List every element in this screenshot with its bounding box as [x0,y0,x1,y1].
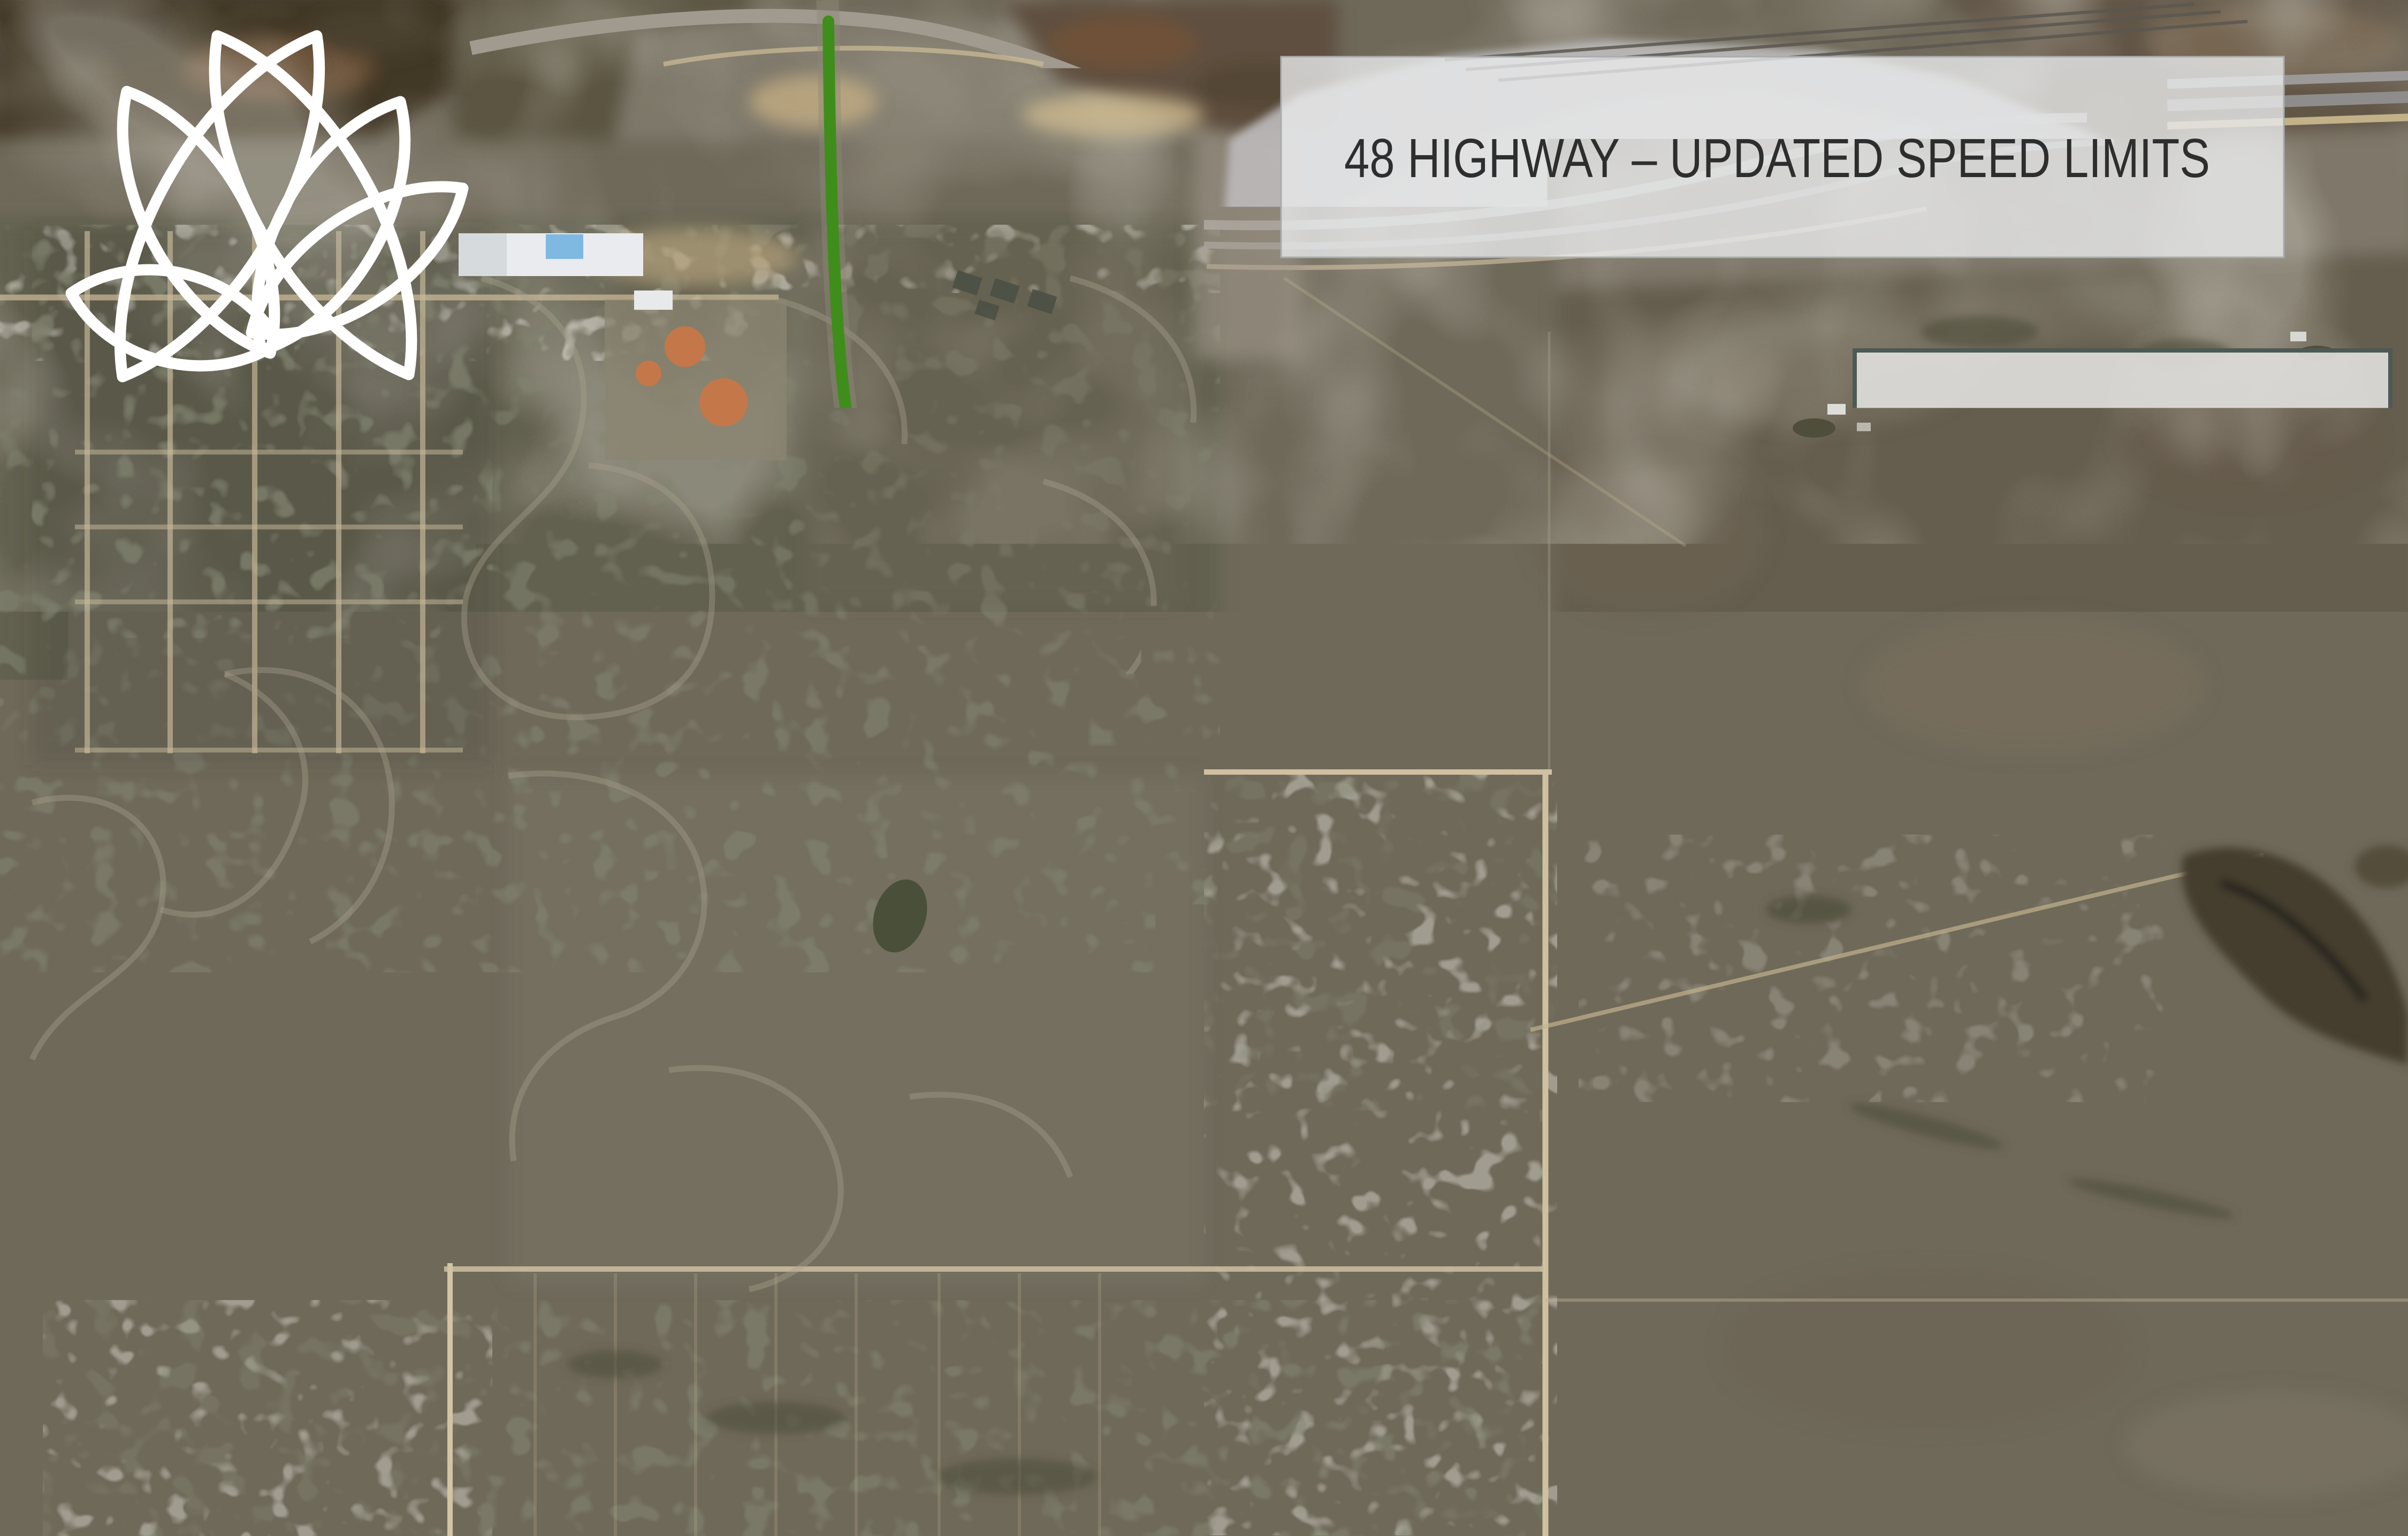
svg-text:50km/hr: 50km/hr [2087,400,2257,453]
svg-text:Motherwell Drive: Motherwell Drive [1186,1131,1202,1239]
svg-text:70km/hr: 70km/hr [2087,462,2257,515]
svg-text:48 HIGHWAY – UPDATED SPEED LIM: 48 HIGHWAY – UPDATED SPEED LIMITS [1344,127,2210,189]
svg-text:Kennedy Road: Kennedy Road [1541,1221,1557,1317]
svg-text:Bower Bay: Bower Bay [1316,1126,1332,1196]
svg-text:White City: White City [53,396,475,504]
svg-text:100km/hr: 100km/hr [2087,521,2283,574]
svg-text:White City: White City [240,1273,392,1304]
